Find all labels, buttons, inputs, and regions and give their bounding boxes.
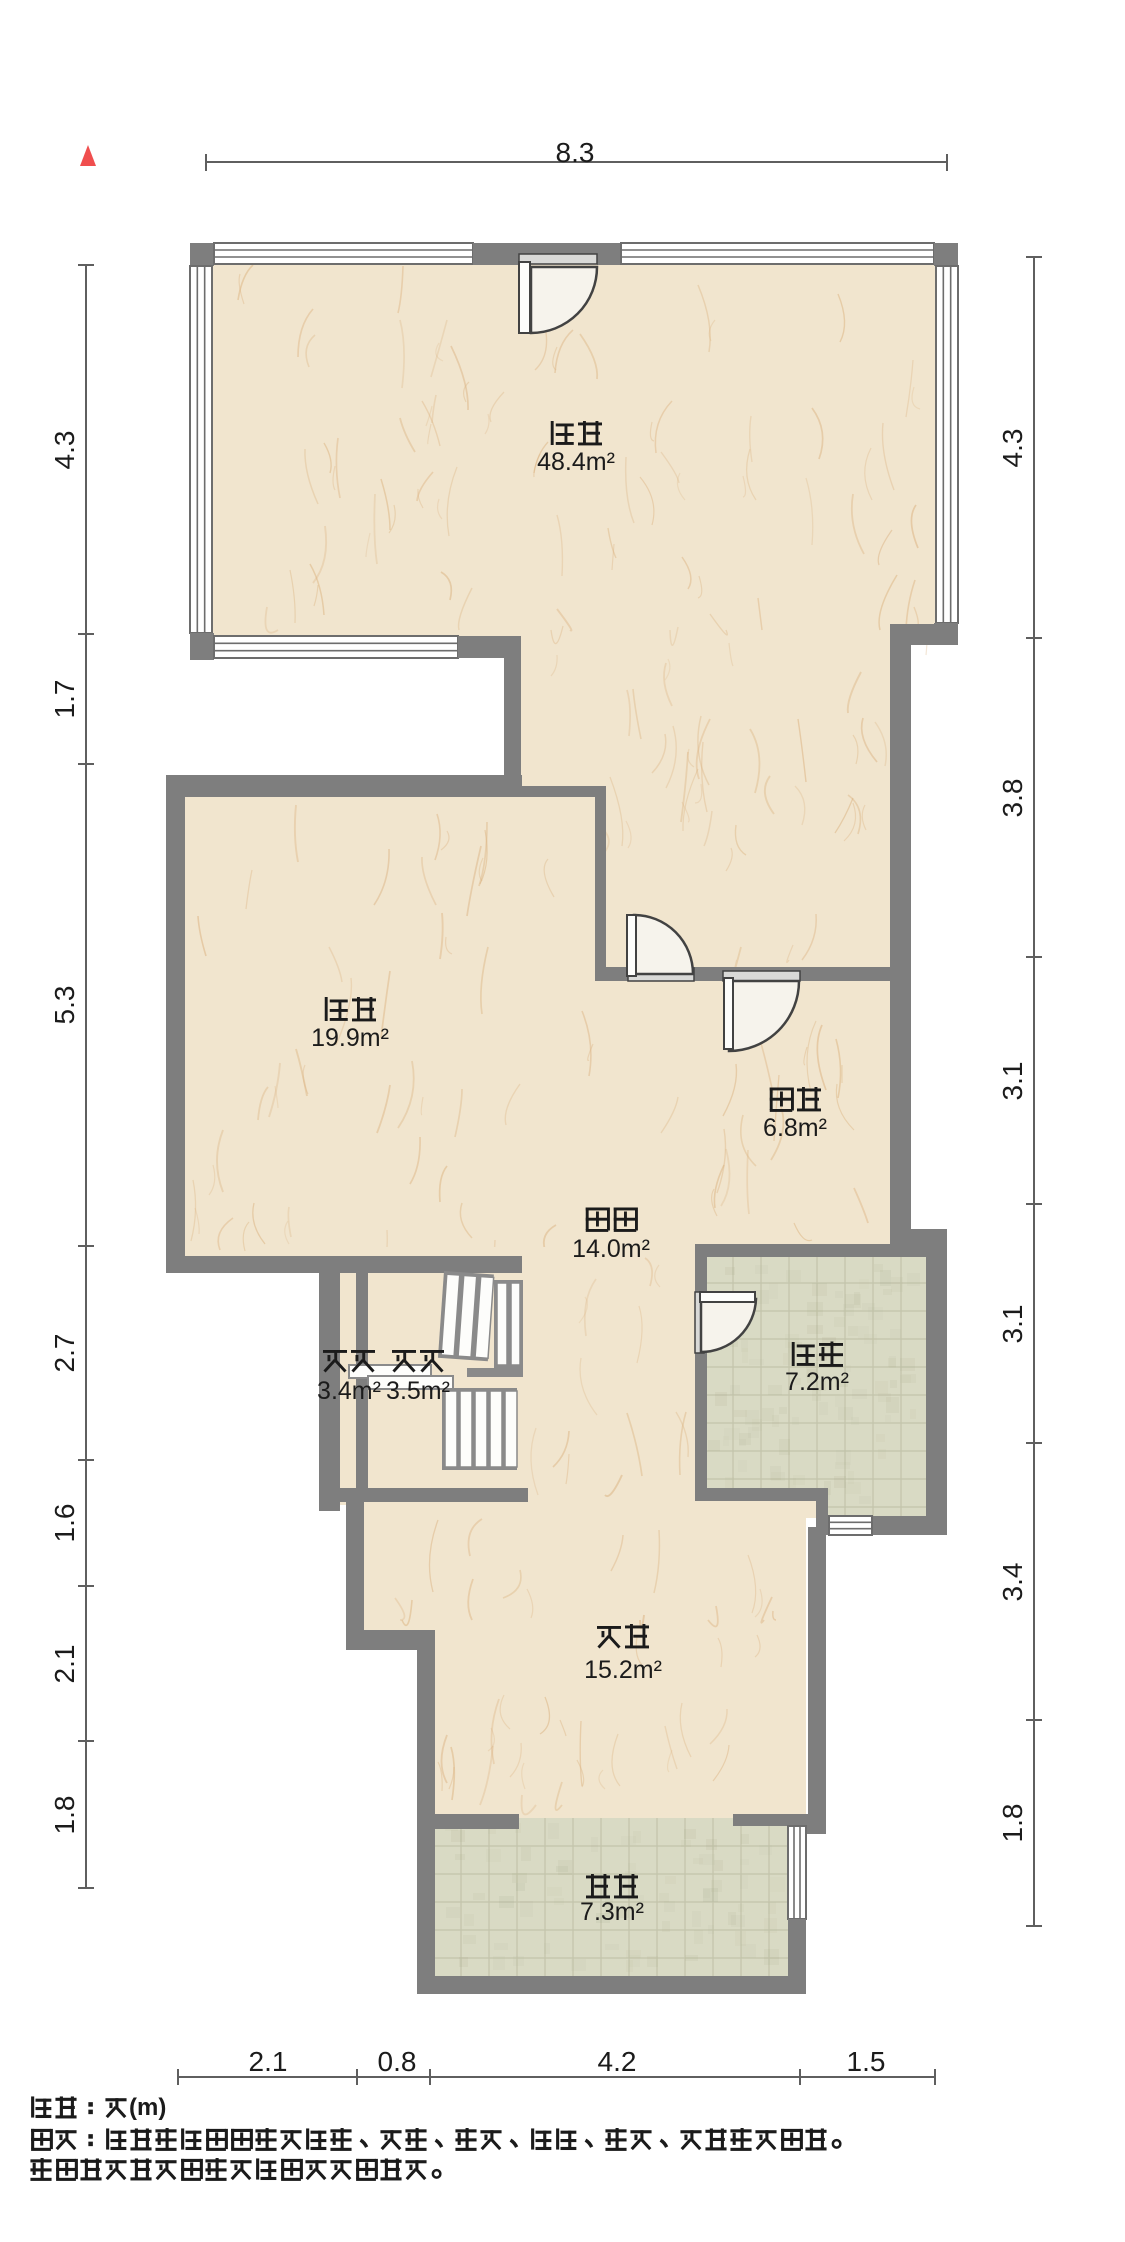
svg-text:5.3: 5.3 [49, 986, 80, 1025]
svg-text:1.6: 1.6 [49, 1504, 80, 1543]
svg-text:19.9m²: 19.9m² [311, 1024, 389, 1052]
svg-text:48.4m²: 48.4m² [537, 448, 615, 476]
svg-text:2.1: 2.1 [249, 2046, 288, 2077]
svg-text:1.8: 1.8 [49, 1796, 80, 1835]
svg-text:0.8: 0.8 [378, 2046, 417, 2077]
svg-text:3.4: 3.4 [997, 1563, 1028, 1602]
svg-text:3.4m²: 3.4m² [317, 1377, 381, 1405]
svg-text:7.3m²: 7.3m² [580, 1898, 644, 1926]
svg-text:8.3: 8.3 [556, 137, 595, 168]
svg-text:4.3: 4.3 [49, 431, 80, 470]
svg-text:6.8m²: 6.8m² [763, 1114, 827, 1142]
svg-text:3.1: 3.1 [997, 1062, 1028, 1101]
svg-text:3.5m²: 3.5m² [386, 1377, 450, 1405]
svg-text:15.2m²: 15.2m² [584, 1656, 662, 1684]
svg-text:1.8: 1.8 [997, 1804, 1028, 1843]
svg-text:3.8: 3.8 [997, 779, 1028, 818]
svg-text:1.7: 1.7 [49, 680, 80, 719]
svg-text:2.7: 2.7 [49, 1334, 80, 1373]
svg-text:4.3: 4.3 [997, 429, 1028, 468]
svg-text:(m): (m) [129, 2094, 166, 2121]
svg-text:3.1: 3.1 [997, 1305, 1028, 1344]
svg-text:1.5: 1.5 [847, 2046, 886, 2077]
svg-text:7.2m²: 7.2m² [785, 1368, 849, 1396]
svg-text:14.0m²: 14.0m² [572, 1235, 650, 1263]
svg-text:2.1: 2.1 [49, 1645, 80, 1684]
svg-text:4.2: 4.2 [598, 2046, 637, 2077]
